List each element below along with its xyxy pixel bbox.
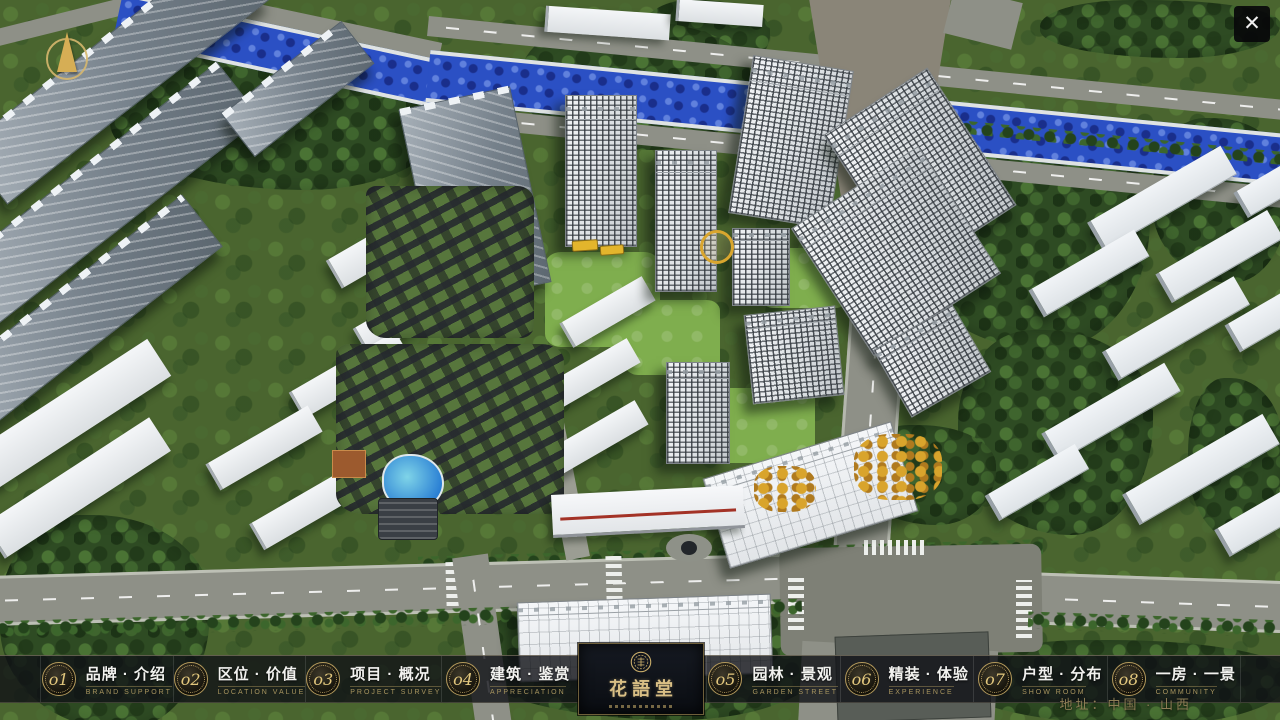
close-icon: ✕	[1243, 12, 1261, 35]
playground-ring	[700, 230, 734, 264]
logo-seal-icon	[630, 651, 652, 673]
nav-number: o8	[1113, 663, 1145, 695]
nav-label-en: BRAND SUPPORT	[86, 686, 172, 696]
nav-label-zh: 项目 · 概况	[350, 663, 430, 684]
accent-building	[332, 450, 366, 478]
nav-item-garden-landscape[interactable]: o5 园林 · 景观GARDEN STREET	[706, 656, 840, 702]
north-arrow-icon	[57, 32, 77, 72]
nav-number: o6	[846, 663, 878, 695]
courtyard-villa-district	[366, 186, 534, 338]
crosswalk	[605, 556, 622, 600]
nav-badge: o8	[1112, 662, 1146, 696]
nav-number: o2	[175, 663, 207, 695]
nav-label-en: EXPERIENCE	[889, 686, 954, 696]
nav-number: o3	[307, 663, 339, 695]
nav-label-en: LOCATION VALUE	[218, 686, 306, 696]
aerial-site-view[interactable]	[0, 0, 1280, 720]
residential-tower	[666, 362, 730, 464]
nav-number: o1	[43, 663, 75, 695]
nav-label-zh: 户型 · 分布	[1022, 663, 1102, 684]
project-address: 地址：中国 · 山西	[1059, 694, 1192, 713]
courtyard-villa-district	[336, 344, 564, 514]
nav-item-location-value[interactable]: o2 区位 · 价值LOCATION VALUE	[173, 656, 306, 702]
crosswalk	[864, 540, 926, 555]
crosswalk	[1016, 580, 1032, 638]
nav-badge: o5	[708, 662, 742, 696]
shuttle-bus	[572, 239, 599, 252]
nav-label-zh: 品牌 · 介绍	[86, 663, 166, 684]
logo-subtext-decoration	[609, 705, 673, 708]
nav-item-project-overview[interactable]: o3 项目 · 概况PROJECT SURVEY	[305, 656, 441, 702]
nav-label-en: PROJECT SURVEY	[350, 686, 441, 696]
nav-badge: o4	[446, 662, 480, 696]
nav-number: o5	[709, 663, 741, 695]
nav-label-zh: 建筑 · 鉴赏	[490, 663, 570, 684]
project-logo-panel[interactable]: 花語堂	[578, 643, 704, 715]
autumn-trees	[754, 466, 816, 512]
residential-tower	[565, 95, 637, 247]
nav-label-zh: 精装 · 体验	[889, 663, 969, 684]
autumn-trees	[854, 434, 942, 500]
compass-north-icon	[42, 34, 92, 84]
close-button[interactable]: ✕	[1234, 6, 1270, 42]
nav-label-en: GARDEN STREET	[752, 686, 838, 696]
presentation-window: ✕ o1 品牌 · 介绍BRAND SUPPORT o2 区位 · 价值LOCA…	[0, 0, 1280, 720]
residential-tower	[744, 305, 845, 404]
nav-badge: o6	[845, 662, 879, 696]
nav-item-architecture-appreciation[interactable]: o4 建筑 · 鉴赏APPRECIATION	[441, 656, 574, 702]
nav-label-zh: 园林 · 景观	[752, 663, 832, 684]
nav-item-decor-experience[interactable]: o6 精装 · 体验EXPERIENCE	[840, 656, 974, 702]
residential-tower	[732, 228, 790, 306]
nav-label-zh: 区位 · 价值	[218, 663, 298, 684]
pavilion-building	[378, 498, 438, 540]
nav-item-brand-intro[interactable]: o1 品牌 · 介绍BRAND SUPPORT	[40, 656, 173, 702]
nav-badge: o7	[978, 662, 1012, 696]
nav-badge: o1	[42, 662, 76, 696]
nav-number: o7	[979, 663, 1011, 695]
shuttle-bus	[600, 244, 625, 256]
entrance-gate-plaza	[666, 534, 712, 562]
nav-label-en: APPRECIATION	[490, 686, 566, 696]
residential-tower	[655, 150, 717, 292]
nav-number: o4	[447, 663, 479, 695]
nav-badge: o2	[174, 662, 208, 696]
project-logo-title: 花語堂	[604, 675, 678, 701]
nav-label-zh: 一房 · 一景	[1156, 663, 1236, 684]
nav-group-left: o1 品牌 · 介绍BRAND SUPPORT o2 区位 · 价值LOCATI…	[40, 656, 574, 702]
nav-badge: o3	[306, 662, 340, 696]
